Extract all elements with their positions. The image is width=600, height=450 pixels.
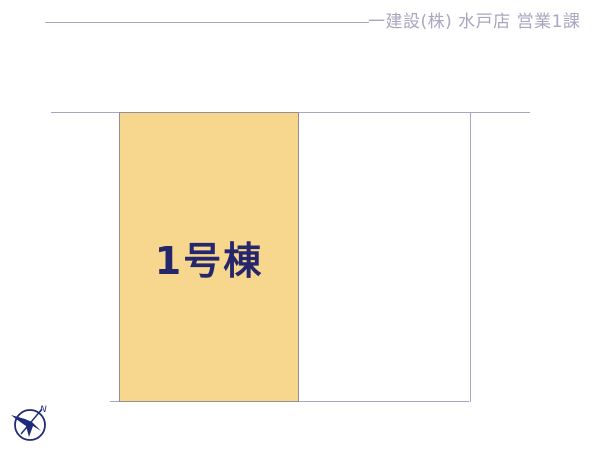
site-plan-page: 一建設(株) 水戸店 営業1課 1号棟 N (0, 0, 600, 450)
lot-2 (299, 113, 470, 401)
compass-north-icon: N (9, 402, 55, 446)
header-rule (45, 22, 369, 23)
boundary-line-right (470, 112, 471, 402)
lot-1-label: 1号棟 (155, 230, 263, 285)
lot-1: 1号棟 (119, 112, 299, 402)
company-name: 一建設(株) 水戸店 営業1課 (368, 11, 596, 33)
compass-north-label: N (40, 405, 47, 415)
